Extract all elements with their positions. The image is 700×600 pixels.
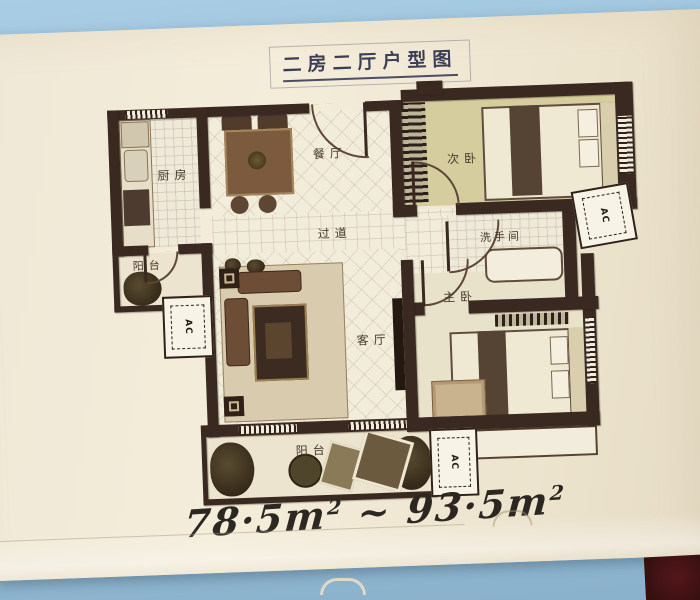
photo-of-floorplan: 二房二厅户型图 bbox=[0, 0, 700, 600]
ac-unit-label: AC bbox=[598, 207, 611, 224]
kitchen-appliance bbox=[121, 121, 150, 148]
dark-object-corner bbox=[644, 555, 700, 600]
room-label-second-bedroom: 次卧 bbox=[447, 149, 482, 167]
room-label-living: 客厅 bbox=[356, 331, 391, 349]
bed-blanket bbox=[509, 105, 542, 196]
floorplan-paper: 二房二厅户型图 bbox=[0, 9, 700, 581]
sofa bbox=[224, 298, 250, 367]
page-title-text: 二房二厅户型图 bbox=[282, 44, 458, 82]
area-max-sup: 2 bbox=[549, 480, 567, 505]
ac-unit-label: AC bbox=[449, 454, 460, 470]
ac-unit: AC bbox=[571, 182, 638, 249]
ac-unit-frame: AC bbox=[171, 304, 206, 350]
decorative-swirl bbox=[320, 578, 366, 595]
side-table bbox=[224, 396, 245, 417]
room-label-balcony-left: 阳台 bbox=[132, 257, 165, 274]
window bbox=[125, 110, 167, 120]
wall bbox=[393, 204, 417, 217]
area-min-sup: 2 bbox=[326, 495, 344, 520]
room-label-balcony-bottom: 阳台 bbox=[295, 441, 330, 459]
room-label-dining: 餐厅 bbox=[312, 144, 347, 162]
ac-unit-label: AC bbox=[183, 319, 194, 335]
bed-pillow bbox=[551, 370, 570, 399]
room-label-hallway: 过道 bbox=[317, 224, 352, 242]
sofa bbox=[237, 270, 302, 294]
wall bbox=[416, 80, 442, 95]
kitchen-stove bbox=[123, 189, 150, 226]
coffee-table-decor bbox=[265, 322, 292, 359]
bed-pillow bbox=[577, 109, 598, 138]
bay-window bbox=[467, 425, 598, 460]
room-label-master: 主卧 bbox=[443, 287, 478, 305]
ac-unit-frame: AC bbox=[437, 437, 471, 487]
bathtub bbox=[484, 246, 563, 283]
bed-pillow bbox=[550, 336, 569, 365]
ac-unit-frame: AC bbox=[582, 192, 627, 240]
window bbox=[618, 116, 634, 174]
kitchen-sink bbox=[124, 149, 149, 182]
room-label-kitchen: 厨房 bbox=[157, 166, 192, 184]
room-label-bathroom: 洗手间 bbox=[480, 228, 523, 246]
side-table bbox=[219, 268, 240, 289]
bed-pillow bbox=[578, 139, 599, 168]
floorplan-drawing: AC AC AC 厨房 餐厅 次卧 过道 洗手间 主卧 客厅 阳台 阳台 bbox=[105, 75, 650, 522]
ac-unit: AC bbox=[162, 295, 214, 359]
